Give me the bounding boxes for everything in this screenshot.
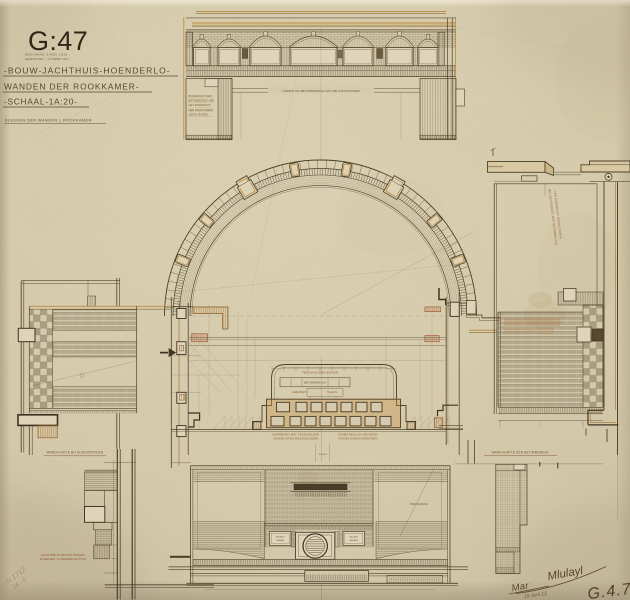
svg-text:ONDER DE BETIMMERING VAN DE RO: ONDER DE BETIMMERING VAN DE ROOKKAMER (282, 89, 360, 93)
svg-text:BETIMMERING: BETIMMERING (304, 381, 326, 385)
svg-text:GEPOLITOERD: GEPOLITOERD (189, 112, 209, 116)
svg-text:BOVENKANT DER: BOVENKANT DER (189, 94, 212, 98)
svg-text:WANDVLAKTE BIJ SCHOORSTEEN: WANDVLAKTE BIJ SCHOORSTEEN (47, 451, 104, 455)
svg-text:BLEEKEN DER WANDEN L ROOKKAMER: BLEEKEN DER WANDEN L ROOKKAMER (5, 119, 92, 123)
svg-text:STEEN: STEEN (319, 454, 327, 456)
svg-text:WANDVLAKTE DER BETIMMERING: WANDVLAKTE DER BETIMMERING (492, 450, 549, 454)
svg-text:DER ROOKKAMER: DER ROOKKAMER (189, 108, 213, 112)
svg-text:GEBAKKEN: GEBAKKEN (292, 391, 306, 394)
svg-text:-SCHAAL-1A:20-: -SCHAAL-1A:20- (4, 97, 78, 107)
svg-text:MARMEREN MET TEGELVELDEN: MARMEREN MET TEGELVELDEN (273, 432, 320, 436)
svg-text:TEGELS: TEGELS (327, 391, 337, 394)
svg-text:KANAAL: KANAAL (350, 539, 359, 542)
svg-text:WANDEN DER ROOKKAMER-: WANDEN DER ROOKKAMER- (4, 82, 139, 92)
svg-text:-BOUW-JACHTHUIS-HOENDERLO-: -BOUW-JACHTHUIS-HOENDERLO- (4, 66, 171, 76)
svg-text:KANAAL: KANAAL (276, 539, 285, 542)
svg-text:ASLADE: ASLADE (276, 536, 285, 539)
svg-text:ASLADE: ASLADE (350, 536, 359, 539)
svg-text:GEWIJZIGD - 14 FEBR 1917: GEWIJZIGD - 14 FEBR 1917 (25, 57, 70, 61)
svg-text:STEENEN VLOERBELASTING: STEENEN VLOERBELASTING (40, 557, 87, 561)
svg-text:GEMETSELD EN GEVOEGD: GEMETSELD EN GEVOEGD (338, 432, 377, 436)
svg-text:GEWAPEND BETON BOVEN: GEWAPEND BETON BOVEN (41, 553, 85, 557)
svg-text:G:47: G:47 (28, 26, 88, 56)
svg-text:AANRECHTEN DOORGEVOERD: AANRECHTEN DOORGEVOERD (273, 436, 318, 440)
svg-text:TEGELVELDEN BOVEN: TEGELVELDEN BOVEN (302, 371, 338, 375)
svg-text:HET EIKENHOUT: HET EIKENHOUT (189, 103, 212, 107)
svg-text:BETIMMERING VAN: BETIMMERING VAN (189, 99, 215, 103)
svg-text:BANKLEUNING: BANKLEUNING (410, 503, 428, 506)
svg-text:ROODE HANDVORMSTEEN: ROODE HANDVORMSTEEN (338, 436, 377, 440)
